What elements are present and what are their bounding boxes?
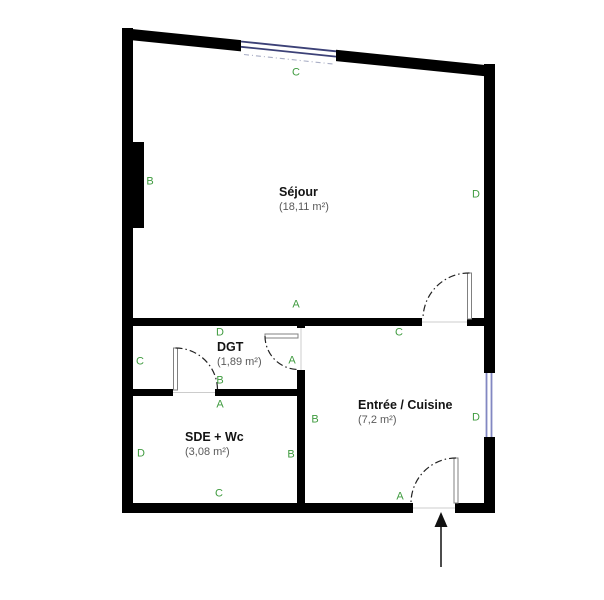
bottom-wall-left [122, 503, 413, 513]
bottom-wall-right [455, 503, 495, 513]
wall-label-dgt-left: C [136, 357, 144, 368]
entrance-door [411, 458, 458, 503]
dgt-sde-door [174, 348, 218, 390]
wall-label-sejour-bottom: A [292, 300, 299, 311]
top-wall-right-segment [336, 50, 495, 78]
sejour-division-wall [122, 318, 422, 326]
wall-label-sejour-right: D [472, 190, 480, 201]
room-sde: SDE + Wc (3,08 m²) [185, 430, 244, 460]
floorplan: Séjour (18,11 m²) C B D A DGT (1,89 m²) … [0, 0, 604, 600]
dgt-sde-wall-right [215, 389, 305, 396]
right-wall-lower [484, 437, 495, 513]
sejour-door-leaf [468, 273, 472, 319]
entrance-door-leaf [454, 458, 458, 503]
room-name-dgt: DGT [217, 340, 262, 355]
wall-label-entree-right: D [472, 413, 480, 424]
wall-label-dgt-top: D [216, 328, 224, 339]
sejour-door-arc [423, 273, 470, 319]
room-entree: Entrée / Cuisine (7,2 m²) [358, 398, 452, 428]
room-area-dgt: (1,89 m²) [217, 355, 262, 370]
dgt-entree-door-leaf [265, 334, 298, 338]
entrance-arrow [435, 512, 448, 567]
wall-label-sde-right: B [287, 450, 294, 461]
wall-label-entree-left: B [311, 415, 318, 426]
top-window-inner-line [241, 47, 336, 57]
top-window-swing-line [244, 55, 333, 65]
outer-walls [122, 28, 495, 513]
wall-label-sde-top: A [216, 400, 223, 411]
room-dgt: DGT (1,89 m²) [217, 340, 262, 370]
dgt-sde-door-arc [176, 348, 218, 390]
wall-label-sejour-left: B [146, 177, 153, 188]
right-window [487, 373, 492, 437]
wall-label-sde-bottom: C [215, 489, 223, 500]
sejour-door [423, 273, 472, 319]
dgt-sde-door-leaf [174, 348, 178, 390]
room-sejour: Séjour (18,11 m²) [279, 185, 329, 215]
room-area-entree: (7,2 m²) [358, 413, 452, 428]
room-name-entree: Entrée / Cuisine [358, 398, 452, 413]
wall-label-dgt-bottom: B [216, 376, 223, 387]
top-window [241, 42, 336, 65]
floorplan-drawing [0, 0, 604, 600]
wall-label-entree-bottom: A [396, 492, 403, 503]
radiator [128, 142, 144, 228]
center-wall-upper [297, 318, 305, 328]
right-wall-upper [484, 64, 495, 373]
room-area-sejour: (18,11 m²) [279, 200, 329, 215]
wall-label-sde-left: D [137, 449, 145, 460]
wall-label-dgt-right: A [288, 356, 295, 367]
entrance-arrow-head [435, 512, 448, 527]
entrance-door-arc [411, 458, 456, 503]
room-name-sde: SDE + Wc [185, 430, 244, 445]
room-name-sejour: Séjour [279, 185, 329, 200]
top-window-outer-line [241, 42, 336, 52]
room-area-sde: (3,08 m²) [185, 445, 244, 460]
dgt-sde-wall-left [122, 389, 173, 396]
top-wall-left-segment [122, 28, 241, 51]
wall-label-sejour-top: C [292, 68, 300, 79]
left-wall [122, 28, 133, 513]
wall-label-entree-top: C [395, 328, 403, 339]
